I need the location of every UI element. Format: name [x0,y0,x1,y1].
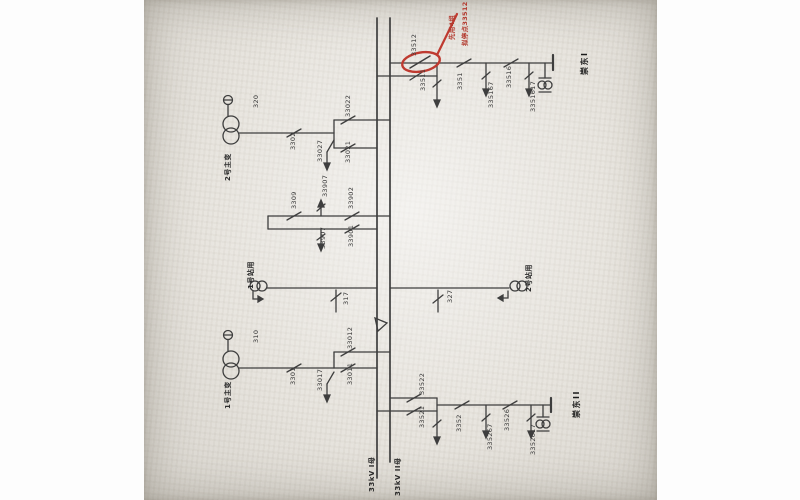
label-d3352: 3352 [456,414,463,432]
label-d310: 310 [253,330,260,343]
label-d33011: 33011 [347,363,354,385]
label-d33907b: 33907 [320,227,327,249]
label-d33516: 33516 [506,66,513,88]
label-d335267: 335267 [487,423,494,450]
label-bus1: 33kV I母 [368,457,376,492]
label-st1: 1号站用 [247,261,255,289]
label-d33907a: 33907 [322,175,329,197]
label-t1: 1号主变 [224,381,232,409]
label-d3351: 3351 [457,72,464,90]
label-d3351617: 3351617 [530,81,537,112]
label-d33022: 33022 [345,95,352,117]
label-d33526: 33526 [504,409,511,431]
label-d3302: 3302 [290,132,297,150]
label-d320: 320 [253,95,260,108]
feeder-3352 [377,394,551,444]
label-st2: 2号站用 [525,264,533,292]
single-line-diagram-linework [144,0,657,500]
label-t2: 2号主变 [224,153,232,181]
label-d33902: 33902 [348,187,355,209]
label-d33017: 33017 [317,369,324,391]
label-d33021: 33021 [345,141,352,163]
label-d33511: 33511 [420,69,427,91]
label-note1: 拟停点33512 [462,1,469,46]
label-line2: 崇东II [572,390,581,418]
label-d33027: 33027 [317,140,324,162]
transformer-2-branch [223,96,390,171]
label-d33012: 33012 [347,327,354,349]
bus-coupler-3309 [268,200,390,251]
label-d3309: 3309 [291,191,298,209]
diagram-photo: 33512335113351335167335163351617崇东I拟停点33… [144,0,657,500]
label-bus2: 33kV II母 [394,458,402,496]
label-d33512: 33512 [411,34,418,56]
label-d3301: 3301 [290,367,297,385]
station-transformer-2-branch [390,281,527,312]
label-d33522: 33522 [419,373,426,395]
label-d335167: 335167 [488,81,495,108]
label-d317: 317 [343,292,350,305]
station-transformer-1-branch [250,281,377,312]
label-d33521: 33521 [419,406,426,428]
label-d3352617: 3352617 [530,424,537,455]
label-d33901: 33901 [348,225,355,247]
label-d327: 327 [447,290,454,303]
label-line1: 崇东I [580,52,589,75]
transformer-1-branch [223,331,390,403]
label-note2: 先用4组 [449,15,456,40]
